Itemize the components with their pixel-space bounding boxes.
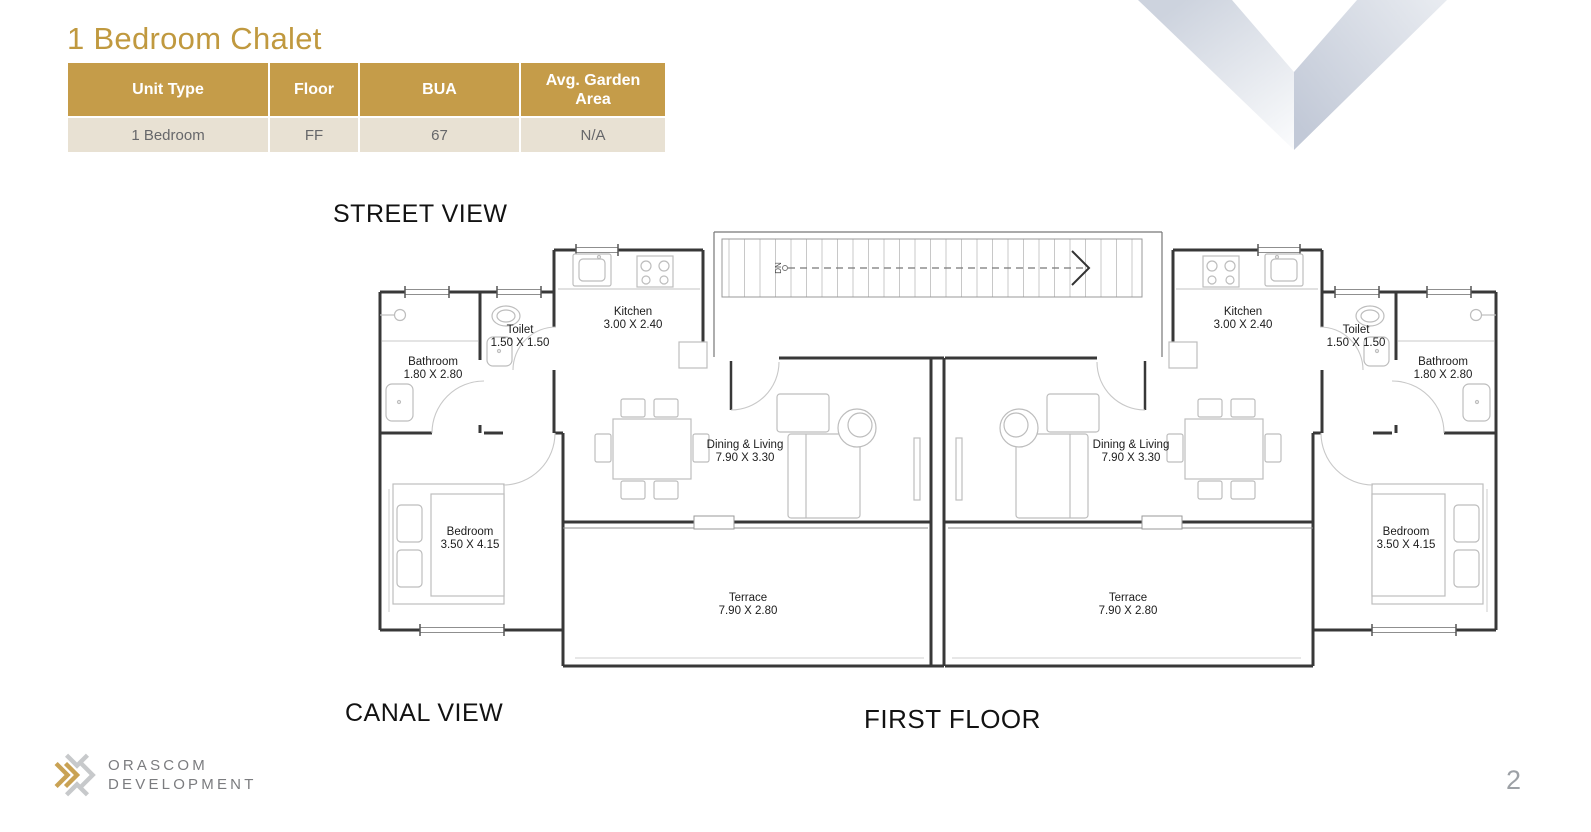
svg-text:1.80 X 2.80: 1.80 X 2.80 (404, 369, 463, 381)
svg-text:3.50 X 4.15: 3.50 X 4.15 (1377, 539, 1436, 551)
svg-text:7.90 X 3.30: 7.90 X 3.30 (1102, 452, 1161, 464)
table-header-garden-area: Avg. Garden Area (521, 63, 665, 116)
window-marks (405, 244, 618, 636)
unit-info-table: Unit Type Floor BUA Avg. Garden Area 1 B… (68, 63, 669, 152)
page-number: 2 (1506, 765, 1521, 796)
fixtures (380, 254, 920, 612)
stair-arrow-head (1072, 251, 1089, 285)
door-arcs (432, 327, 779, 485)
brand-name: ORASCOM DEVELOPMENT (108, 756, 257, 794)
svg-text:7.90 X 2.80: 7.90 X 2.80 (719, 605, 778, 617)
canal-view-label: CANAL VIEW (345, 699, 503, 728)
table-header-bua: BUA (360, 63, 519, 116)
orascom-logo-icon (54, 752, 100, 798)
stair-treads (722, 239, 1142, 297)
party-wall (931, 358, 944, 666)
svg-text:1.50 X 1.50: 1.50 X 1.50 (1327, 337, 1386, 349)
room-label-bathroom-right: Bathroom (1418, 356, 1468, 368)
room-label-dining-left: Dining & Living (707, 439, 784, 451)
table-header-unit-type: Unit Type (68, 63, 268, 116)
brand-line1: ORASCOM (108, 756, 257, 775)
room-labels-right: Kitchen 3.00 X 2.40 Toilet 1.50 X 1.50 B… (1093, 306, 1473, 617)
room-label-toilet-right: Toilet (1343, 324, 1371, 336)
stairs-dn-label: DN (774, 262, 783, 274)
unit-left (380, 244, 931, 666)
room-label-dining-right: Dining & Living (1093, 439, 1170, 451)
svg-text:3.00 X 2.40: 3.00 X 2.40 (604, 319, 663, 331)
corner-chevron-decoration (1138, 0, 1447, 150)
svg-text:3.00 X 2.40: 3.00 X 2.40 (1214, 319, 1273, 331)
table-cell-bua: 67 (360, 118, 519, 152)
room-label-bathroom-left: Bathroom (408, 356, 458, 368)
room-label-terrace-left: Terrace (729, 592, 767, 604)
room-label-bedroom-left: Bedroom (447, 526, 494, 538)
svg-text:7.90 X 2.80: 7.90 X 2.80 (1099, 605, 1158, 617)
room-label-bedroom-right: Bedroom (1383, 526, 1430, 538)
brand-line2: DEVELOPMENT (108, 775, 257, 794)
svg-text:7.90 X 3.30: 7.90 X 3.30 (716, 452, 775, 464)
first-floor-label: FIRST FLOOR (864, 704, 1041, 735)
staircase: DN (714, 232, 1162, 357)
table-header-floor: Floor (270, 63, 358, 116)
svg-text:1.80 X 2.80: 1.80 X 2.80 (1414, 369, 1473, 381)
table-cell-floor: FF (270, 118, 358, 152)
street-view-label: STREET VIEW (333, 200, 508, 229)
unit-right (945, 244, 1496, 666)
room-labels-left: Kitchen 3.00 X 2.40 Toilet 1.50 X 1.50 B… (404, 306, 784, 617)
table-cell-unit-type: 1 Bedroom (68, 118, 268, 152)
svg-text:1.50 X 1.50: 1.50 X 1.50 (491, 337, 550, 349)
room-label-toilet-left: Toilet (507, 324, 535, 336)
brand-logo: ORASCOM DEVELOPMENT (54, 752, 257, 798)
svg-text:3.50 X 4.15: 3.50 X 4.15 (441, 539, 500, 551)
slide-page: DN Kitchen 3.00 X 2.40 Toilet 1.50 X 1.5… (0, 0, 1591, 832)
table-cell-garden-area: N/A (521, 118, 665, 152)
room-label-kitchen-left: Kitchen (614, 306, 652, 318)
room-label-kitchen-right: Kitchen (1224, 306, 1262, 318)
room-label-terrace-right: Terrace (1109, 592, 1147, 604)
page-title: 1 Bedroom Chalet (67, 21, 322, 57)
